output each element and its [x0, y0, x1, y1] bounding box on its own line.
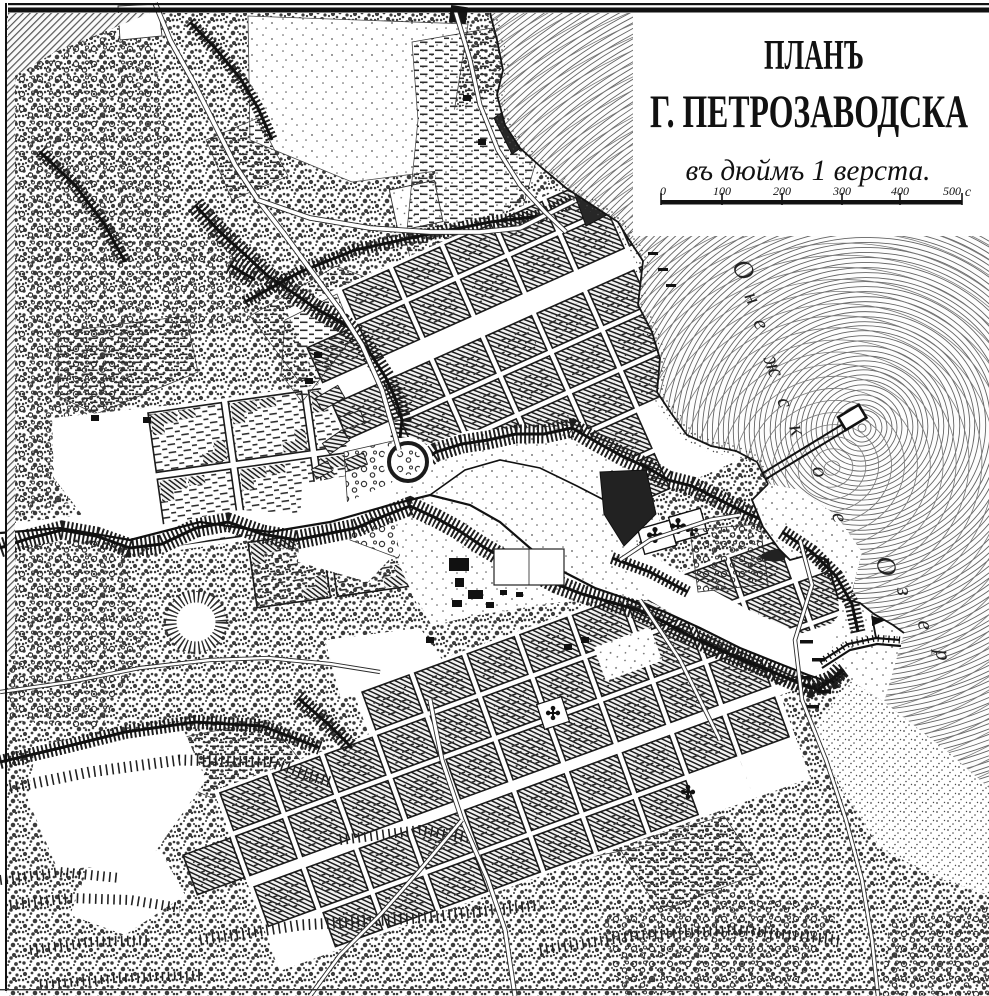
svg-text:Г. ПЕТРОЗАВОДСКА: Г. ПЕТРОЗАВОДСКА	[650, 86, 968, 138]
svg-text:ПЛАНЪ: ПЛАНЪ	[764, 33, 864, 79]
svg-text:с: с	[965, 185, 972, 200]
svg-text:500: 500	[943, 184, 961, 198]
svg-text:въ дюймъ 1 верста.: въ дюймъ 1 верста.	[686, 154, 931, 187]
